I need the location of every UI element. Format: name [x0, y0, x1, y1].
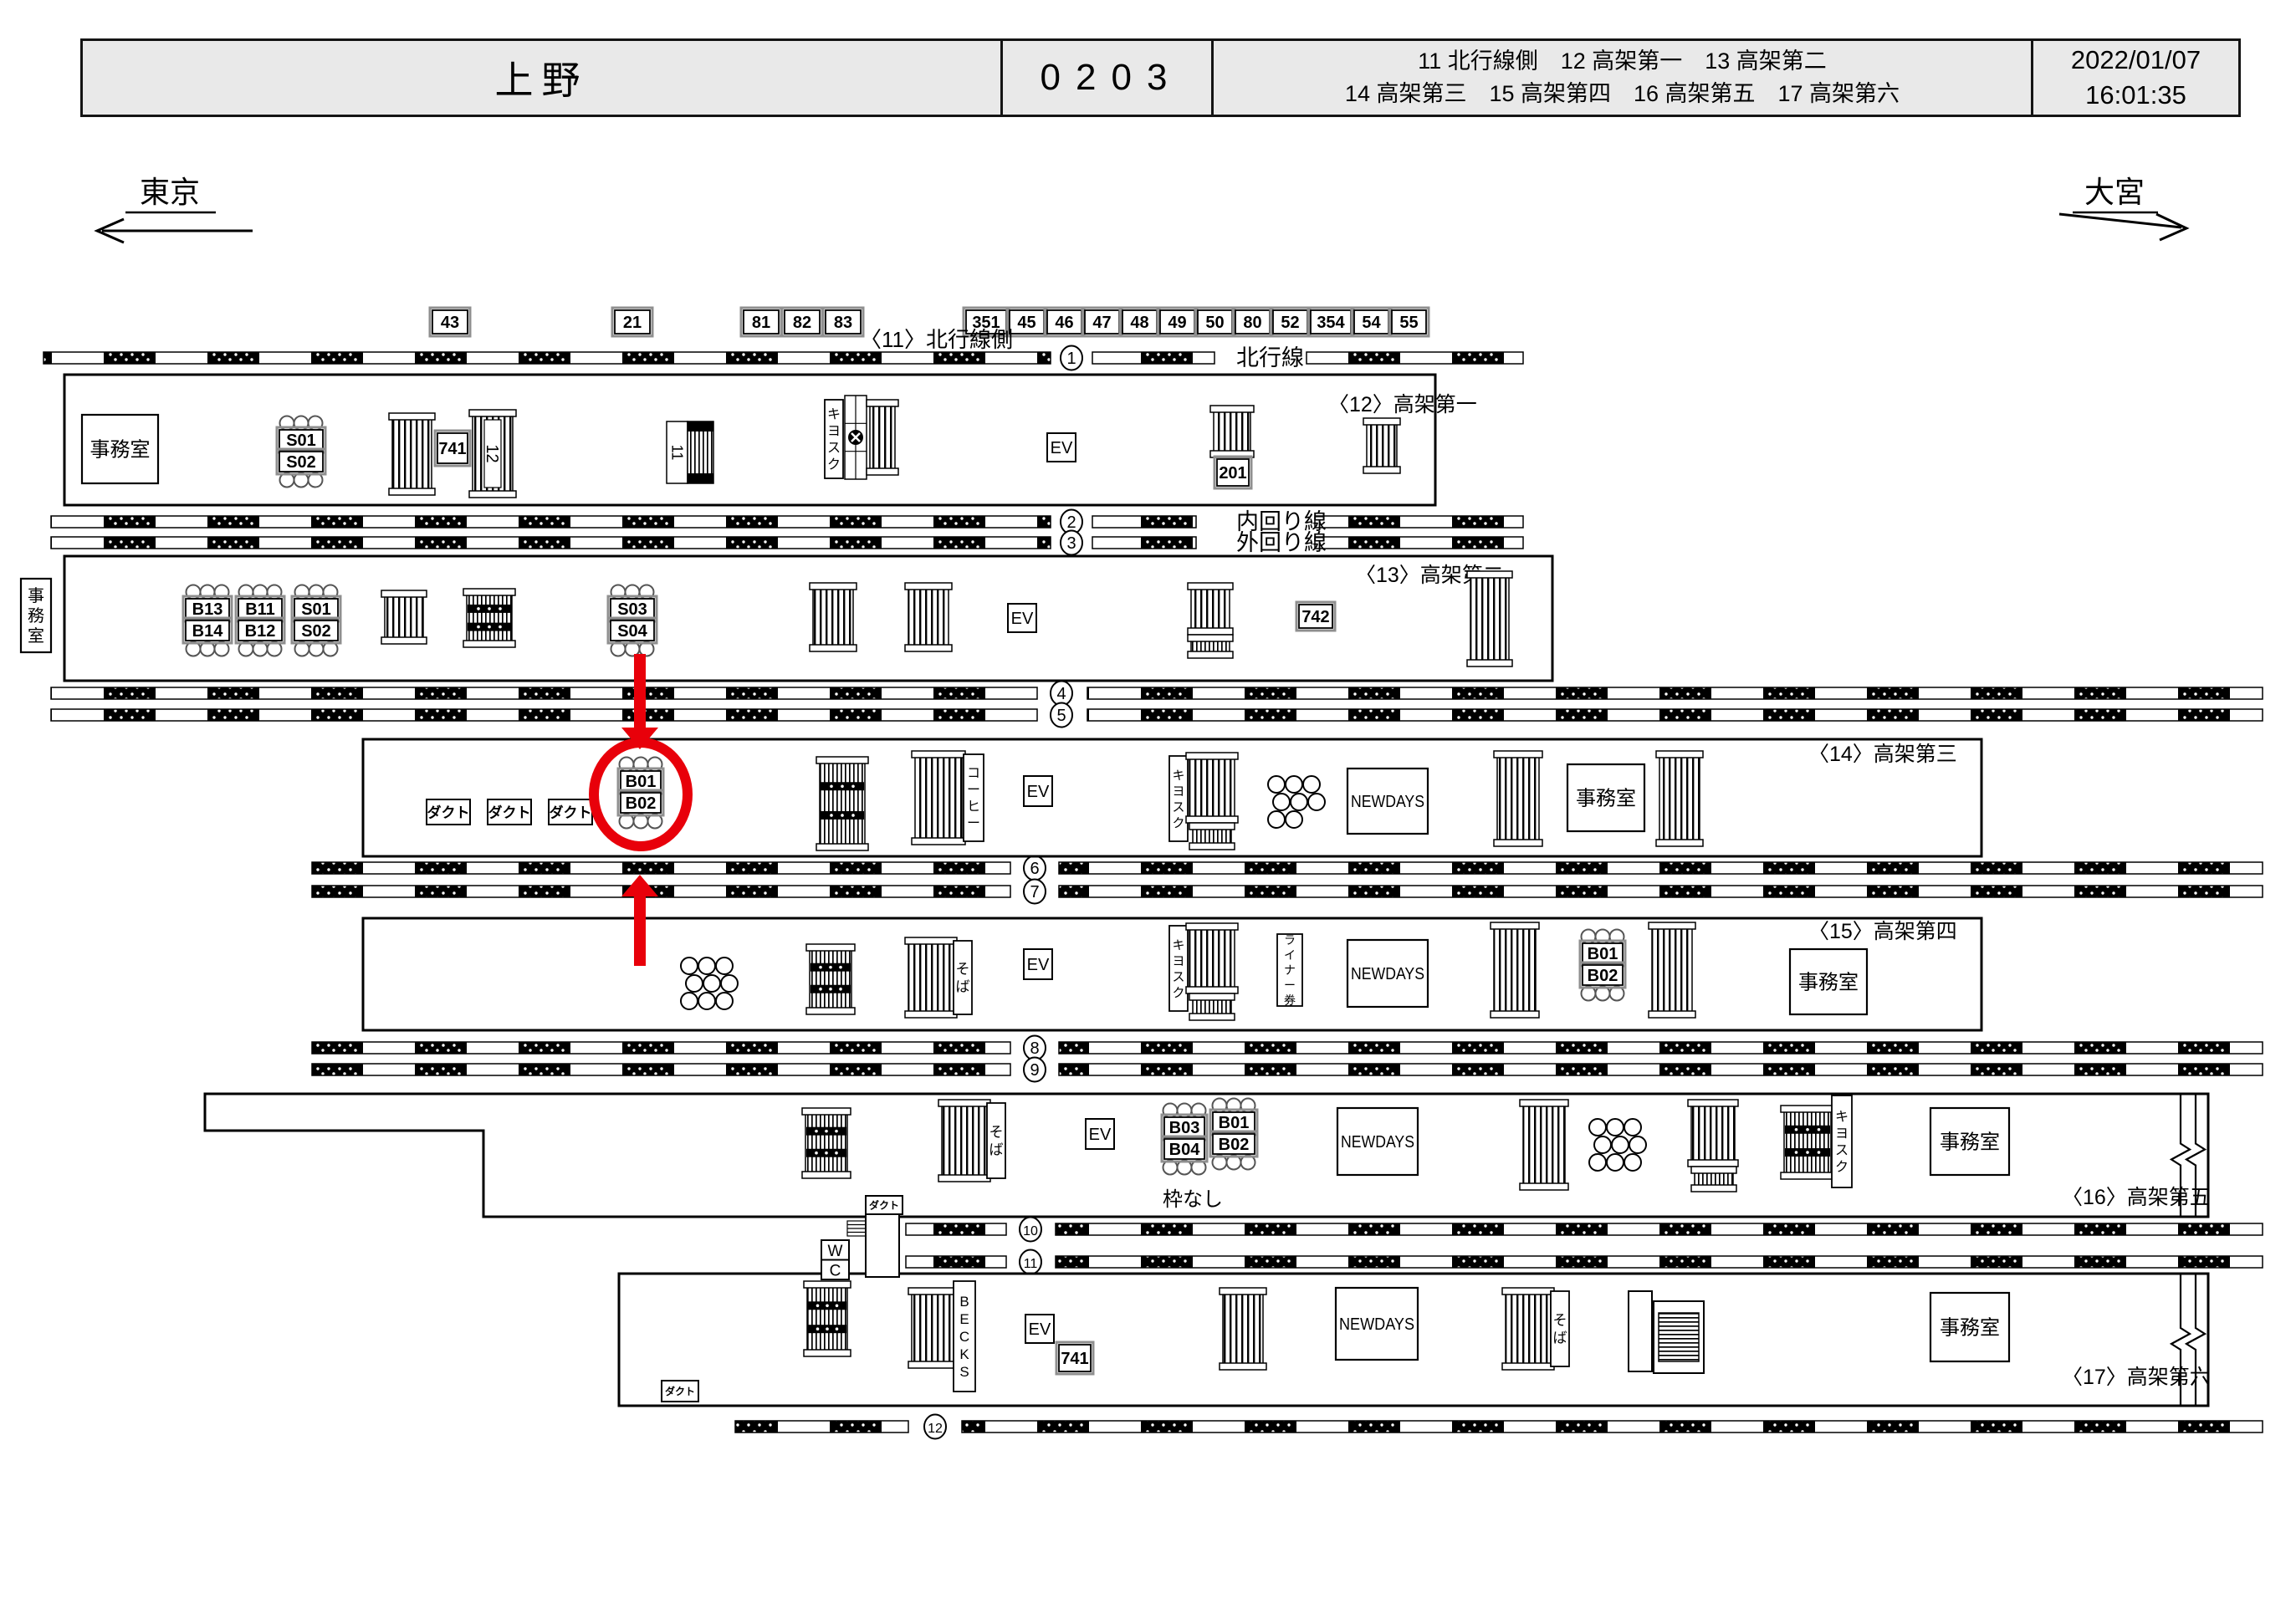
ad-sign-B01-B02-highlighted[interactable]: B01B02 [618, 758, 663, 829]
svg-text:10: 10 [1023, 1224, 1038, 1238]
ad-sign-S03-S04[interactable]: S03S04 [608, 585, 657, 656]
svg-text:12: 12 [928, 1422, 943, 1436]
ad-sign-B11-B12[interactable]: B11B12 [236, 585, 284, 656]
platform-14-label: 〈14〉高架第三 [1808, 743, 1957, 766]
track-2-segment [1092, 516, 1196, 528]
svg-text:B13: B13 [192, 600, 223, 619]
coffee-shop-label: コーヒー [964, 754, 984, 841]
svg-text:80: 80 [1243, 314, 1261, 332]
ad-number-82[interactable]: 82 [782, 308, 822, 336]
svg-text:〈16〉高架第五: 〈16〉高架第五 [2062, 1186, 2211, 1209]
stairs [905, 583, 952, 651]
kiosk-label: キヨスク [1169, 756, 1188, 841]
escalator [816, 757, 868, 850]
direction-arrow-omiya: 大宮 [2059, 175, 2186, 240]
platform-17-label: 〈17〉高架第六 [2062, 1366, 2211, 1389]
svg-text:45: 45 [1017, 314, 1036, 332]
track-7-number: 7 [1024, 880, 1046, 904]
svg-text:6: 6 [1030, 860, 1039, 878]
platform-legend: 11 北行線側 12 高架第一 13 高架第二 14 高架第三 15 高架第四 … [1214, 41, 2033, 115]
svg-text:B03: B03 [1169, 1119, 1200, 1137]
stairs [1220, 1288, 1266, 1370]
ad-number-81[interactable]: 81 [741, 308, 781, 336]
liner-ticket-label: ライナー券 [1277, 933, 1302, 1007]
stairs [1188, 583, 1233, 635]
stairs [1491, 922, 1539, 1018]
soba-shop-label: そば [987, 1103, 1005, 1178]
track-3-segment [1092, 537, 1196, 549]
direction-arrow-tokyo: 東京 [97, 175, 253, 243]
track-10-segment [1056, 1223, 2263, 1235]
station-code: 0203 [1003, 41, 1214, 115]
svg-text:2: 2 [1066, 513, 1076, 532]
svg-text:事務室: 事務室 [1576, 787, 1636, 809]
stairs [381, 590, 427, 644]
stairs [1494, 751, 1542, 846]
svg-text:事務室: 事務室 [1798, 971, 1859, 993]
ad-number-50[interactable]: 50 [1195, 308, 1235, 336]
svg-text:B02: B02 [1219, 1136, 1250, 1154]
stairs [1629, 1291, 1652, 1371]
svg-text:5: 5 [1056, 707, 1066, 725]
ad-number-80[interactable]: 80 [1233, 308, 1272, 336]
stairs [867, 400, 898, 475]
svg-text:B12: B12 [245, 622, 276, 641]
svg-text:11: 11 [1024, 1257, 1038, 1271]
location-741: 741 [435, 431, 470, 466]
soba-shop-label: そば [954, 941, 972, 1014]
track-5-segment [1087, 709, 2263, 721]
svg-text:1: 1 [1066, 350, 1076, 368]
svg-text:201: 201 [1219, 464, 1246, 483]
svg-text:事務室: 事務室 [90, 438, 151, 461]
location-201: 201 [1214, 457, 1251, 488]
stairs-12: 12 [469, 410, 516, 498]
newdays-shop: NEWDAYS [1347, 769, 1428, 834]
track-3-name: 外回り線 [1236, 530, 1327, 555]
svg-text:事務室: 事務室 [1940, 1131, 2000, 1153]
stairs [905, 937, 957, 1018]
svg-text:EV: EV [1027, 956, 1050, 974]
svg-text:S01: S01 [301, 600, 331, 619]
svg-text:9: 9 [1030, 1061, 1039, 1080]
ad-number-45[interactable]: 45 [1007, 308, 1046, 336]
track-7-segment [312, 886, 1010, 897]
stairs [912, 751, 965, 845]
svg-text:ライナー券: ライナー券 [1284, 933, 1296, 1007]
stairs [1520, 1100, 1568, 1190]
elevator: EV [1047, 433, 1076, 462]
svg-text:B04: B04 [1169, 1141, 1201, 1159]
svg-text:〈12〉高架第一: 〈12〉高架第一 [1328, 393, 1477, 416]
frame-none-label: 枠なし [1163, 1188, 1223, 1211]
svg-text:83: 83 [834, 314, 852, 332]
svg-text:12: 12 [483, 444, 501, 462]
svg-text:ダクト: ダクト [550, 804, 592, 820]
stairs [1186, 923, 1238, 993]
svg-text:NEWDAYS: NEWDAYS [1351, 793, 1424, 811]
track-10-segment [906, 1223, 1006, 1235]
newdays-shop: NEWDAYS [1347, 940, 1428, 1007]
track-12-number: 12 [924, 1415, 946, 1439]
passage [866, 1214, 899, 1277]
legend-line-1: 11 北行線側 12 高架第一 13 高架第二 [1418, 45, 1827, 78]
track-5-number: 5 [1051, 703, 1072, 728]
ad-number-47[interactable]: 47 [1082, 308, 1122, 336]
station-map: 東京大宮432181828335145464748495080523545455… [0, 0, 2296, 1624]
track-8-number: 8 [1024, 1036, 1046, 1060]
svg-text:北行線: 北行線 [1236, 345, 1304, 370]
svg-text:事務室: 事務室 [1940, 1316, 2000, 1339]
track-3-segment [1315, 537, 1523, 549]
connecting-steps [847, 1221, 866, 1236]
svg-text:7: 7 [1030, 883, 1039, 901]
svg-text:W: W [828, 1243, 843, 1260]
legend-line-2: 14 高架第三 15 高架第四 16 高架第五 17 高架第六 [1345, 78, 1900, 110]
kiosk-label: キヨスク [1832, 1095, 1852, 1187]
escalator-11: 11 [667, 421, 713, 483]
track-7-segment [1059, 886, 2263, 897]
track-10-number: 10 [1020, 1218, 1041, 1242]
date-label: 2022/01/07 [2071, 43, 2201, 78]
svg-text:B01: B01 [1219, 1114, 1250, 1132]
stairs [1688, 1100, 1738, 1167]
track-11-segment [1056, 1256, 2263, 1268]
svg-text:EV: EV [1027, 783, 1050, 801]
svg-text:741: 741 [1061, 1350, 1088, 1368]
station-name: 上野 [83, 41, 1003, 115]
ad-number-83[interactable]: 83 [823, 308, 863, 336]
time-label: 16:01:35 [2085, 78, 2186, 113]
track-12-segment [735, 1421, 908, 1432]
svg-text:49: 49 [1168, 314, 1186, 332]
track-9-number: 9 [1024, 1058, 1046, 1082]
track-1-segment [1307, 352, 1523, 364]
duct-label: ダクト [662, 1381, 698, 1402]
svg-text:NEWDAYS: NEWDAYS [1341, 1133, 1414, 1152]
stairs [1186, 753, 1238, 823]
duct-label: ダクト [866, 1196, 903, 1214]
ad-number-48[interactable]: 48 [1120, 308, 1159, 336]
track-1-number: 1 [1061, 346, 1082, 370]
escalator [1781, 1106, 1834, 1179]
svg-text:55: 55 [1399, 314, 1418, 332]
svg-text:NEWDAYS: NEWDAYS [1339, 1315, 1414, 1334]
office-room: 事務室 [1930, 1293, 2009, 1361]
svg-text:4: 4 [1056, 685, 1066, 703]
svg-text:8: 8 [1030, 1039, 1039, 1058]
track-2-segment [1315, 516, 1523, 528]
platform-12-label: 〈12〉高架第一 [1328, 393, 1477, 416]
wc-room: WC [821, 1240, 849, 1279]
svg-text:3: 3 [1066, 534, 1076, 553]
svg-text:B14: B14 [192, 622, 224, 641]
svg-text:NEWDAYS: NEWDAYS [1351, 965, 1424, 983]
track-9-segment [1059, 1064, 2263, 1075]
stairs [1467, 571, 1512, 666]
svg-text:81: 81 [752, 314, 770, 332]
ad-number-49[interactable]: 49 [1158, 308, 1197, 336]
escalator [1189, 993, 1235, 1020]
elevator: EV [1025, 1315, 1054, 1343]
track-1-name: 北行線 [1236, 345, 1304, 370]
svg-text:〈14〉高架第三: 〈14〉高架第三 [1808, 743, 1957, 766]
duct-label: ダクト [427, 799, 470, 825]
svg-text:ダクト: ダクト [665, 1385, 695, 1397]
svg-text:EV: EV [1051, 439, 1073, 457]
svg-text:EV: EV [1029, 1320, 1051, 1339]
header-bar: 上野 0203 11 北行線側 12 高架第一 13 高架第二 14 高架第三 … [80, 38, 2241, 117]
svg-text:B02: B02 [626, 794, 657, 813]
svg-text:東京: 東京 [140, 175, 200, 209]
stairs [810, 583, 857, 651]
datetime-display: 2022/01/07 16:01:35 [2033, 41, 2238, 115]
svg-text:〈17〉高架第六: 〈17〉高架第六 [2062, 1366, 2211, 1389]
office-room: 事務室 [1567, 764, 1644, 831]
track-1-segment [43, 352, 1051, 364]
office-room: 事務室 [1790, 949, 1867, 1014]
svg-text:S01: S01 [286, 432, 316, 450]
kiosk-label: キヨスク [1169, 926, 1188, 1011]
section-title: 〈11〉北行線側 [860, 327, 1013, 352]
escalator [804, 1281, 851, 1356]
svg-text:43: 43 [441, 314, 459, 332]
stairs [1210, 406, 1254, 457]
stairs [1363, 418, 1400, 473]
svg-text:BECKS: BECKS [959, 1294, 969, 1380]
svg-text:大宮: 大宮 [2084, 175, 2145, 209]
svg-text:742: 742 [1301, 608, 1329, 626]
ad-number-55[interactable]: 55 [1389, 308, 1429, 336]
svg-text:B01: B01 [1588, 945, 1618, 963]
svg-text:354: 354 [1317, 314, 1345, 332]
track-8-segment [312, 1042, 1010, 1054]
newdays-shop: NEWDAYS [1337, 1108, 1418, 1175]
ad-number-46[interactable]: 46 [1045, 308, 1084, 336]
svg-text:50: 50 [1205, 314, 1224, 332]
svg-text:ダクト: ダクト [427, 804, 470, 820]
svg-text:ダクト: ダクト [488, 804, 531, 820]
stairs [1502, 1288, 1554, 1370]
platform-16-label: 〈16〉高架第五 [2062, 1186, 2211, 1209]
ad-number-354[interactable]: 354 [1308, 308, 1353, 336]
svg-text:S02: S02 [286, 453, 316, 472]
stairs [938, 1100, 990, 1182]
track-12-segment [962, 1421, 2263, 1432]
track-6-segment [312, 862, 1010, 874]
pillar-circles [681, 958, 738, 1009]
svg-text:47: 47 [1092, 314, 1111, 332]
svg-text:B11: B11 [245, 600, 275, 619]
svg-text:〈15〉高架第四: 〈15〉高架第四 [1808, 920, 1957, 943]
platform-15-label: 〈15〉高架第四 [1808, 920, 1957, 943]
soba-shop-label: そば [1551, 1291, 1569, 1366]
svg-text:S04: S04 [617, 622, 647, 641]
svg-text:S03: S03 [617, 600, 647, 619]
track-8-segment [1059, 1042, 2263, 1054]
stairs [1649, 922, 1695, 1018]
ad-sign-B01-B02[interactable]: B01B02 [1580, 930, 1625, 1001]
track-4-segment [51, 687, 1037, 699]
office-room: 事務室 [21, 579, 51, 652]
becks-shop-label: BECKS [954, 1281, 975, 1392]
svg-text:48: 48 [1130, 314, 1148, 332]
track-4-segment [1087, 687, 2263, 699]
track-11-segment [906, 1256, 1006, 1268]
track-11-number: 11 [1020, 1250, 1041, 1274]
elevator: EV [1086, 1119, 1114, 1149]
svg-text:B02: B02 [1588, 967, 1618, 985]
track-2-segment [51, 516, 1051, 528]
track-3-segment [51, 537, 1051, 549]
kiosk-label: キヨスク [825, 400, 843, 478]
svg-text:外回り線: 外回り線 [1236, 530, 1327, 555]
svg-text:52: 52 [1281, 314, 1299, 332]
escalator [463, 589, 515, 647]
svg-text:C: C [830, 1262, 841, 1279]
svg-text:11: 11 [669, 445, 686, 461]
elevator: EV [1024, 949, 1052, 979]
ad-sign-B01-B02[interactable]: B01B02 [1210, 1099, 1257, 1170]
ad-number-43[interactable]: 43 [430, 308, 470, 336]
escalator [802, 1108, 851, 1178]
svg-text:46: 46 [1055, 314, 1073, 332]
svg-text:EV: EV [1089, 1126, 1112, 1144]
stairs [908, 1288, 957, 1368]
pillar-circles [1589, 1119, 1646, 1171]
stairs [1656, 751, 1703, 846]
ad-sign-S01-S02[interactable]: S01S02 [292, 585, 340, 656]
svg-text:B01: B01 [626, 773, 657, 791]
duct-label: ダクト [549, 799, 592, 825]
svg-text:事務室: 事務室 [28, 586, 44, 646]
track-6-number: 6 [1024, 856, 1046, 881]
svg-text:54: 54 [1362, 314, 1381, 332]
track-4-number: 4 [1051, 682, 1072, 706]
track-9-segment [312, 1064, 1010, 1075]
track-1-segment [1092, 352, 1214, 364]
clock-structure [845, 396, 867, 479]
ad-sign-B03-B04[interactable]: B03B04 [1162, 1104, 1207, 1175]
track-3-number: 3 [1061, 531, 1082, 555]
newdays-shop: NEWDAYS [1336, 1288, 1418, 1360]
svg-text:82: 82 [793, 314, 811, 332]
track-6-segment [1059, 862, 2263, 874]
office-room: 事務室 [1930, 1108, 2009, 1175]
elevator: EV [1024, 776, 1052, 806]
escalator [1654, 1301, 1704, 1373]
ad-sign-B13-B14[interactable]: B13B14 [183, 585, 232, 656]
ad-number-54[interactable]: 54 [1352, 308, 1391, 336]
stairs [389, 413, 435, 495]
office-room: 事務室 [82, 415, 158, 483]
duct-label: ダクト [488, 799, 531, 825]
svg-text:〈11〉北行線側: 〈11〉北行線側 [860, 327, 1013, 352]
escalator [1189, 823, 1235, 850]
elevator: EV [1008, 604, 1036, 632]
svg-text:S02: S02 [301, 622, 331, 641]
ad-number-52[interactable]: 52 [1271, 308, 1310, 336]
svg-text:EV: EV [1011, 610, 1034, 628]
location-741: 741 [1056, 1342, 1093, 1374]
svg-text:741: 741 [438, 440, 466, 458]
location-742: 742 [1296, 602, 1335, 631]
ad-sign-S01-S02[interactable]: S01S02 [277, 416, 325, 488]
escalator [1691, 1167, 1736, 1192]
escalator [806, 944, 855, 1014]
svg-text:21: 21 [623, 314, 642, 332]
svg-text:枠なし: 枠なし [1163, 1188, 1223, 1211]
escalator [1188, 635, 1233, 658]
track-5-segment [51, 709, 1037, 721]
svg-text:ダクト: ダクト [869, 1198, 899, 1211]
ad-number-21[interactable]: 21 [612, 308, 652, 336]
